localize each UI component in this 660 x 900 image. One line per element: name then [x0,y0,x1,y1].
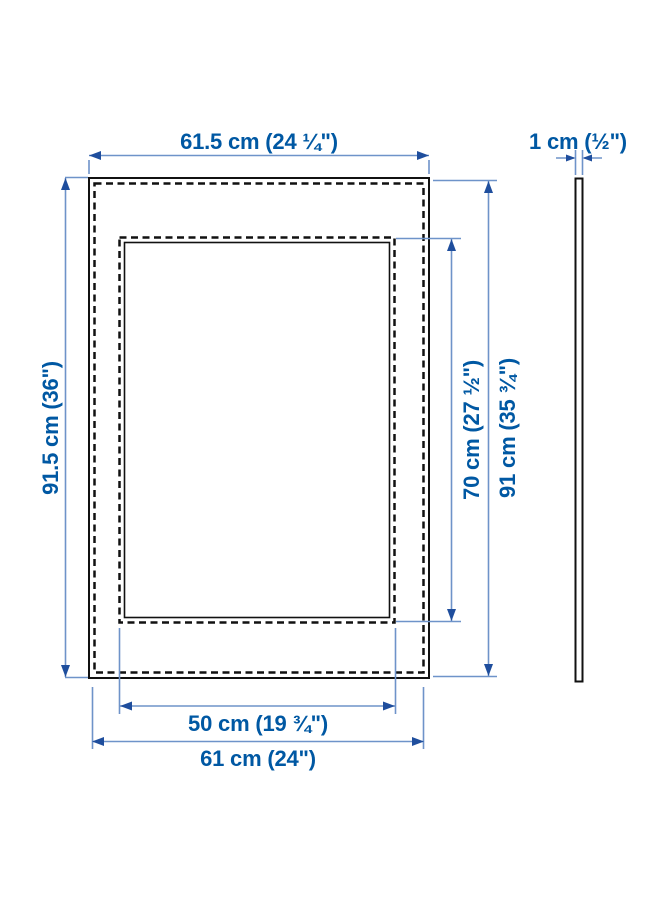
frame-opening-edge [125,243,390,618]
outer-width-label: 61.5 cm (24 ¼") [180,129,338,154]
dimension-depth: 1 cm (½") [529,129,627,175]
arrow-left-icon [89,151,101,160]
arrow-right-icon [412,737,424,746]
frame-side-view [576,179,583,682]
arrow-down-icon [447,609,456,621]
opening-height-label: 70 cm (27 ½") [459,360,484,500]
dimension-outer-height: 91.5 cm (36") [38,178,88,678]
arrow-left-icon [92,737,104,746]
arrow-left-icon [120,702,132,711]
opening-width-label: 50 cm (19 ¾") [188,711,328,736]
dimension-diagram: 61.5 cm (24 ¼") 1 cm (½") 91.5 cm (36") [0,0,660,900]
arrow-up-icon [484,181,493,193]
arrow-down-icon [484,664,493,676]
arrow-right-icon [383,702,395,711]
arrow-left-icon [583,155,593,162]
frame-right-height-label: 91 cm (35 ¾") [495,358,520,498]
frame-side-profile [576,179,583,682]
depth-label: 1 cm (½") [529,129,627,154]
outer-height-label: 91.5 cm (36") [38,361,63,495]
arrow-right-icon [417,151,429,160]
arrow-right-icon [566,155,576,162]
frame-bottom-width-label: 61 cm (24") [200,746,316,771]
arrow-up-icon [447,239,456,251]
dimension-outer-width: 61.5 cm (24 ¼") [89,129,429,174]
arrow-up-icon [61,178,70,190]
frame-front-view [89,178,429,678]
arrow-down-icon [61,665,70,677]
